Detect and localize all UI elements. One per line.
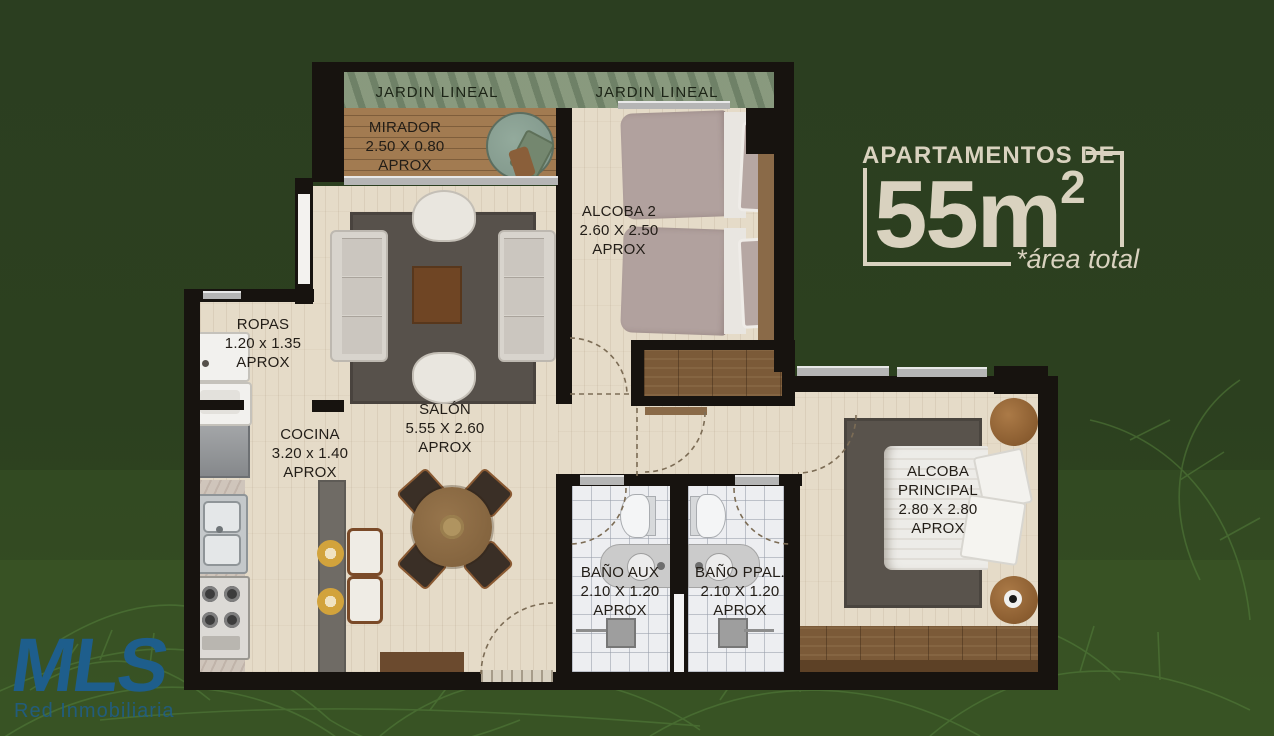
bano-aux-shower-arm: [576, 629, 606, 632]
salon-sofa-right: [498, 230, 556, 362]
room-label-ropas: ROPAS 1.20 x 1.35 APROX: [203, 315, 323, 372]
kitchen-island: [318, 480, 346, 674]
label-jardin-left: JARDIN LINEAL: [357, 84, 517, 101]
door-sill-bano-ppal: [735, 475, 779, 485]
bano-ppal-shower-arm: [744, 629, 774, 632]
room-label-mirador: MIRADOR 2.50 X 0.80 APROX: [340, 118, 470, 175]
entry-threshold: [481, 670, 553, 682]
room-name: ALCOBA PRINCIPAL: [872, 462, 1004, 500]
area-superscript: 2: [1060, 161, 1086, 213]
window-master-2: [897, 367, 987, 377]
room-name: MIRADOR: [340, 118, 470, 137]
bano-aux-shower-drain: [606, 618, 636, 648]
door-panel-left: [298, 194, 310, 284]
entry-bench: [380, 652, 464, 674]
room-aprox: APROX: [564, 601, 676, 620]
hall-door-leaf: [645, 407, 707, 415]
room-label-cocina: COCINA 3.20 x 1.40 APROX: [240, 425, 380, 482]
room-label-alcoba2: ALCOBA 2 2.60 X 2.50 APROX: [556, 202, 682, 259]
room-aprox: APROX: [872, 519, 1004, 538]
wall-ropas-cocina: [200, 400, 244, 410]
master-nightstand-top: [990, 398, 1038, 446]
room-name: ROPAS: [203, 315, 323, 334]
floorplan-poster: JARDIN LINEAL JARDIN LINEAL MIRADOR 2.50…: [0, 0, 1274, 736]
room-name: BAÑO PPAL.: [684, 563, 796, 582]
room-dims: 1.20 x 1.35: [203, 334, 323, 353]
wall-left-outer: [184, 289, 200, 690]
salon-coffee-table: [412, 266, 462, 324]
room-name: ALCOBA 2: [556, 202, 682, 221]
window-mirador: [344, 176, 558, 185]
headline-footnote: *área total: [1016, 244, 1139, 275]
room-aprox: APROX: [684, 601, 796, 620]
room-aprox: APROX: [556, 240, 682, 259]
headline-bracket-top-right: [1086, 151, 1124, 155]
island-plate-2: [317, 588, 344, 615]
wall-master-right: [1038, 376, 1058, 690]
room-name: SALÓN: [380, 400, 510, 419]
room-dims: 2.60 X 2.50: [556, 221, 682, 240]
kitchen-stove: [194, 576, 250, 660]
room-dims: 2.10 X 1.20: [684, 582, 796, 601]
headline-bracket-left: [863, 168, 867, 266]
salon-armchair-top: [412, 190, 476, 242]
room-aprox: APROX: [340, 156, 470, 175]
window-ropas: [203, 291, 241, 299]
bar-stool-2: [347, 576, 383, 624]
window-master-1: [797, 366, 889, 376]
room-dims: 3.20 x 1.40: [240, 444, 380, 463]
room-dims: 2.10 X 1.20: [564, 582, 676, 601]
room-aprox: APROX: [203, 353, 323, 372]
wall-alcoba2-column: [746, 108, 776, 154]
master-nightstand-bottom: [990, 576, 1038, 624]
room-aprox: APROX: [380, 438, 510, 457]
room-label-salon: SALÓN 5.55 X 2.60 APROX: [380, 400, 510, 457]
room-label-alcoba-principal: ALCOBA PRINCIPAL 2.80 X 2.80 APROX: [872, 462, 1004, 538]
kitchen-sink: [196, 494, 248, 574]
dining-table: [412, 487, 492, 567]
headline-bracket-right: [1120, 151, 1124, 247]
wall-cocina-stub: [312, 400, 344, 412]
door-sill-bano-aux: [580, 475, 624, 485]
bano-aux-toilet: [620, 492, 656, 538]
room-name: BAÑO AUX: [564, 563, 676, 582]
room-dims: 2.80 X 2.80: [872, 500, 1004, 519]
island-plate-1: [317, 540, 344, 567]
room-label-bano-ppal: BAÑO PPAL. 2.10 X 1.20 APROX: [684, 563, 796, 620]
alcoba2-closet: [644, 350, 782, 396]
wall-top: [312, 62, 792, 72]
bano-ppal-shower-drain: [718, 618, 748, 648]
salon-armchair-bottom: [412, 352, 476, 404]
wall-alcoba2-right: [774, 62, 794, 372]
wall-bottom: [184, 672, 1058, 690]
room-dims: 5.55 X 2.60: [380, 419, 510, 438]
alcoba2-side-ledge: [758, 150, 774, 346]
bano-ppal-toilet: [690, 492, 726, 538]
mls-logo-tagline: Red Inmobiliaria: [14, 700, 175, 723]
salon-sofa-left: [330, 230, 388, 362]
label-jardin-right: JARDIN LINEAL: [577, 84, 737, 101]
mls-logo: MLS: [7, 628, 172, 704]
room-label-bano-aux: BAÑO AUX 2.10 X 1.20 APROX: [564, 563, 676, 620]
bar-stool-1: [347, 528, 383, 576]
room-name: COCINA: [240, 425, 380, 444]
room-dims: 2.50 X 0.80: [340, 137, 470, 156]
room-aprox: APROX: [240, 463, 380, 482]
window-alcoba2: [618, 101, 730, 109]
